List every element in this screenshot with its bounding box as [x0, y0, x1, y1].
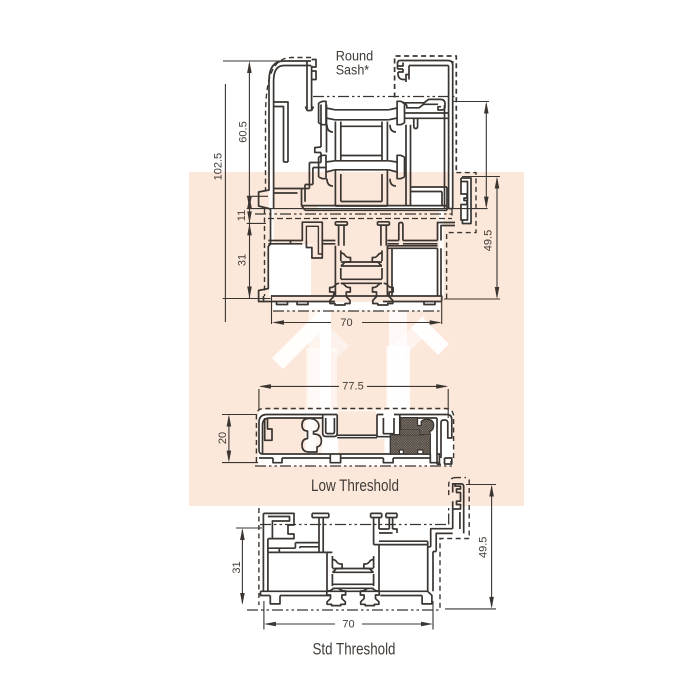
- svg-text:77.5: 77.5: [342, 381, 363, 393]
- svg-text:Std Threshold: Std Threshold: [313, 641, 396, 659]
- svg-text:49.5: 49.5: [483, 230, 495, 251]
- svg-text:31: 31: [237, 254, 249, 266]
- svg-text:Sash*: Sash*: [336, 61, 370, 77]
- svg-text:11: 11: [236, 210, 248, 221]
- svg-text:70: 70: [340, 317, 352, 329]
- svg-text:60.5: 60.5: [238, 121, 250, 142]
- svg-text:20: 20: [217, 432, 229, 444]
- svg-text:Low Threshold: Low Threshold: [311, 477, 399, 495]
- svg-text:49.5: 49.5: [477, 537, 489, 558]
- svg-text:31: 31: [231, 561, 243, 573]
- svg-text:70: 70: [342, 619, 354, 631]
- svg-text:102.5: 102.5: [213, 153, 225, 181]
